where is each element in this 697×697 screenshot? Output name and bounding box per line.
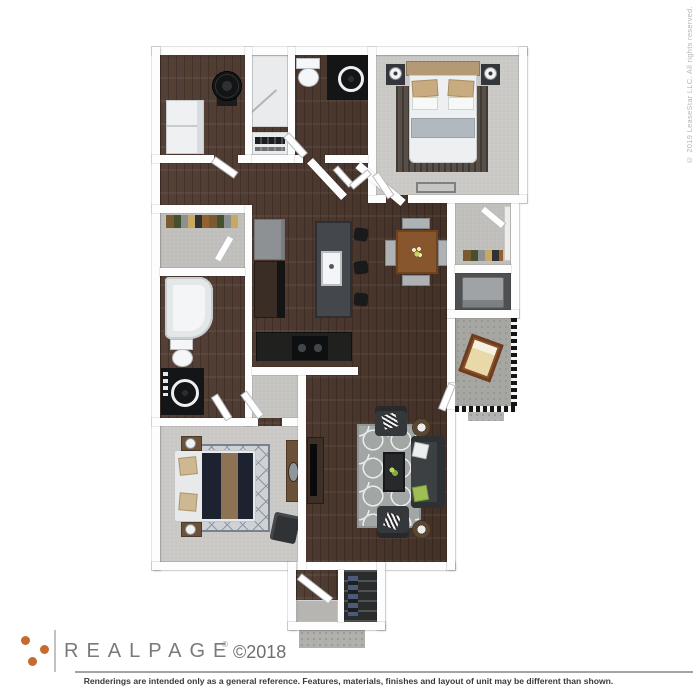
floorplan-rendering-page: © 2019 LeaseStar LLC. All rights reserve… xyxy=(0,0,697,697)
bed2-runner xyxy=(221,453,238,519)
bed1-pillow-white-right xyxy=(449,98,473,109)
bed2-pillow-top xyxy=(179,457,197,475)
island-faucet xyxy=(329,264,334,269)
bed1-pillow-white-left xyxy=(413,98,437,109)
wall-linen-south xyxy=(252,155,295,163)
wall-entry-bottom xyxy=(288,622,385,630)
entry-closet-items xyxy=(348,576,358,616)
copyright-year: ©2018 xyxy=(233,642,286,663)
brand-divider xyxy=(54,630,56,672)
toilet1-tank xyxy=(297,59,319,68)
shower-stall xyxy=(252,55,288,127)
wall-kitchen-south xyxy=(252,367,358,375)
leasestar-watermark: © 2019 LeaseStar LLC. All rights reserve… xyxy=(685,6,694,164)
coffee-table-plant xyxy=(388,466,399,477)
bed1-pillow-tan-right xyxy=(449,80,474,97)
closet-right-items xyxy=(463,250,503,261)
vanity2-sink xyxy=(171,379,199,407)
portable-washer xyxy=(213,72,241,100)
side-table-lamp-bottom xyxy=(413,521,430,538)
wall-utility-south xyxy=(447,310,519,318)
balcony-step xyxy=(468,412,504,421)
balcony-railing-right xyxy=(511,318,517,410)
wall-bedroom1-bottom-left xyxy=(368,195,386,203)
laundry-appliance-split xyxy=(166,125,197,127)
vanity2-items xyxy=(163,372,168,396)
dining-centerpiece xyxy=(410,245,424,259)
cooktop xyxy=(292,336,328,360)
wall-bedroom1-bottom-right xyxy=(408,195,527,203)
water-heater xyxy=(462,277,504,308)
bed1-comforter-band xyxy=(411,118,475,138)
linen-closet-items xyxy=(255,137,285,144)
wall-bedroom2-east xyxy=(298,375,306,570)
disclaimer-text: Renderings are intended only as a genera… xyxy=(0,676,697,686)
bed1-lamp-right xyxy=(485,68,496,79)
bed2-lamp-top xyxy=(186,439,195,448)
wall-exterior-top xyxy=(152,47,527,55)
wall-closet-right-south xyxy=(455,265,511,273)
dining-chair-left xyxy=(385,240,396,266)
sofa-pillow-white xyxy=(413,443,428,458)
wall-closet-left-south xyxy=(160,268,245,276)
wall-entry-divider xyxy=(338,570,344,622)
bed1-headboard xyxy=(407,62,479,75)
tv-screen xyxy=(310,444,317,496)
bed1-lamp-left xyxy=(390,68,401,79)
front-stoop xyxy=(299,630,365,648)
wall-closet-left-north xyxy=(152,205,252,213)
entry-tile xyxy=(296,600,338,622)
kitchen-tall-counter xyxy=(254,261,285,318)
registered-mark: ® xyxy=(222,640,228,649)
vanity1-sink xyxy=(338,66,364,92)
brand-dot-2 xyxy=(40,645,49,654)
wall-entry-left xyxy=(288,562,296,630)
bathtub xyxy=(165,277,213,339)
bed2-lamp-bottom xyxy=(186,525,195,534)
bar-stool-3 xyxy=(353,292,368,306)
bed2-pillow-bottom xyxy=(179,493,196,510)
toilet1-bowl xyxy=(299,69,318,86)
brand-dot-1 xyxy=(21,636,30,645)
wall-laundry-south-a xyxy=(152,155,214,163)
wall-entry-right xyxy=(377,562,385,630)
wall-exterior-left xyxy=(152,47,160,570)
toilet2-bowl xyxy=(173,350,192,366)
wall-bath1-south-b xyxy=(325,155,368,163)
closet-left-items xyxy=(166,215,238,228)
wall-living-east-upper xyxy=(447,318,455,382)
wall-exterior-bottom-left xyxy=(152,562,288,570)
wall-bedroom2-north-a xyxy=(152,418,258,426)
bar-stool-2 xyxy=(353,260,368,274)
bar-stool-1 xyxy=(353,227,369,242)
linen-closet-items-2 xyxy=(255,147,285,151)
side-table-lamp-top xyxy=(413,419,430,436)
laundry-appliance xyxy=(166,100,204,154)
toilet2-tank xyxy=(171,340,192,349)
closet-right-shelf xyxy=(504,206,511,261)
wall-living-east-lower xyxy=(447,410,455,570)
wall-exterior-right-bedroom1 xyxy=(519,47,527,203)
dining-chair-top xyxy=(402,218,430,229)
wall-exterior-bottom-right xyxy=(385,562,455,570)
realpage-logo-text: REALPAGE xyxy=(64,640,234,663)
wall-laundry-east xyxy=(245,47,252,163)
wall-dining-east xyxy=(447,203,455,318)
dining-chair-bottom xyxy=(402,275,430,286)
brand-dot-3 xyxy=(28,657,37,666)
kitchen-fridge xyxy=(254,219,285,260)
sofa-pillow-green xyxy=(413,486,428,501)
bed1-pillow-tan-left xyxy=(413,80,438,97)
bedroom1-console xyxy=(416,182,456,193)
wall-column-right xyxy=(511,203,519,318)
wall-laundry-south-b xyxy=(238,155,252,163)
footer-divider-line xyxy=(75,671,693,673)
